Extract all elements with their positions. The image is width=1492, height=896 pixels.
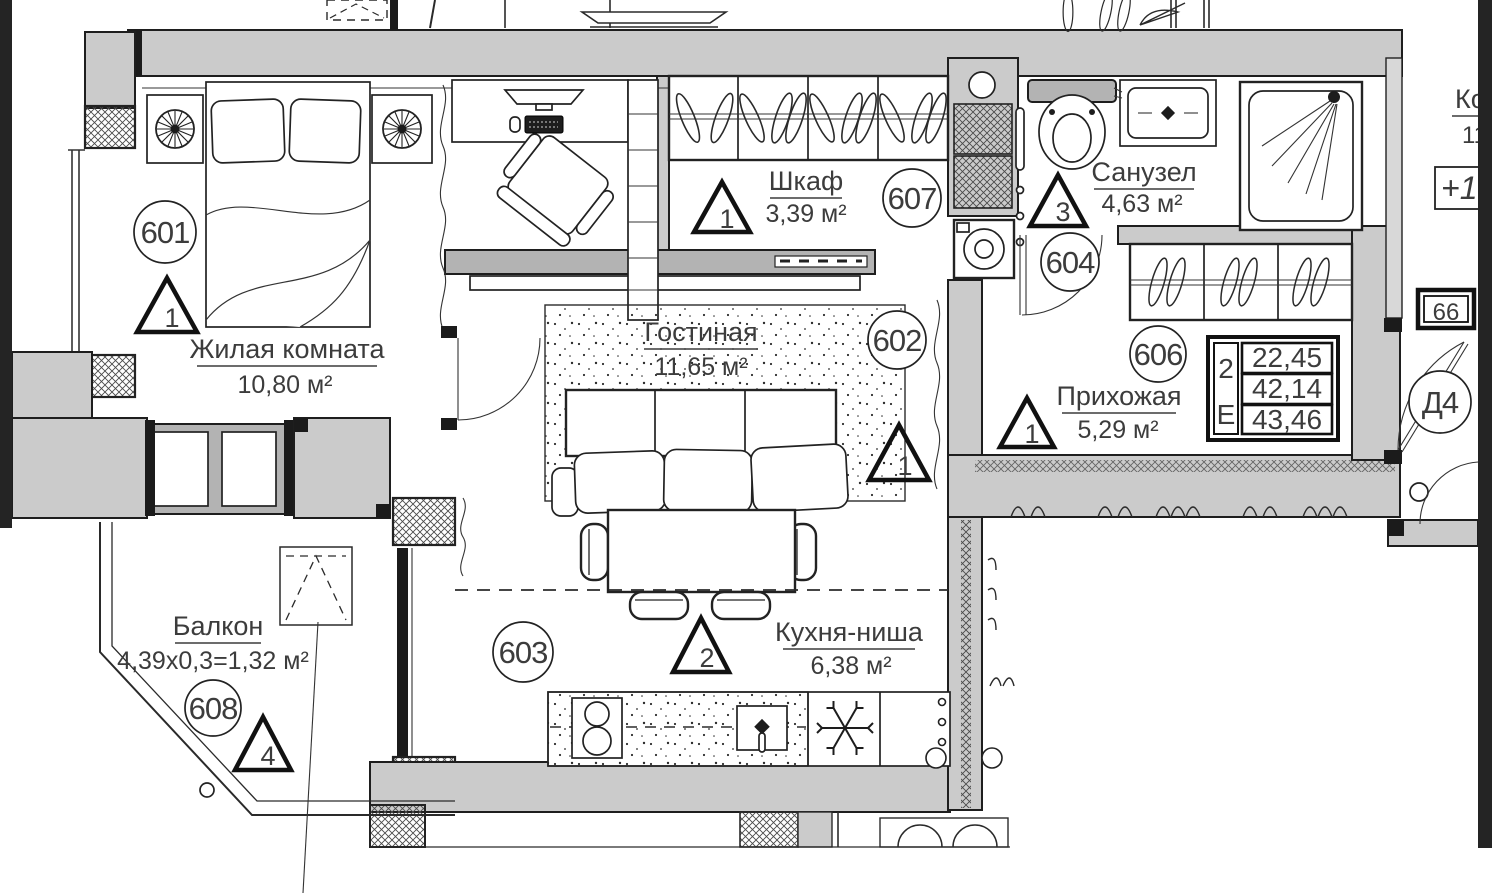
dining-chair-left <box>581 524 608 580</box>
wall-balcony-pier <box>294 418 390 518</box>
door-jamb-bottom <box>1384 450 1402 464</box>
dining-chair-bottom-2 <box>712 592 770 619</box>
neighbor-monitor <box>582 12 726 27</box>
monitor-stand <box>536 104 552 110</box>
wardrobe <box>669 76 950 160</box>
neighbor-wall-hatch <box>740 812 798 847</box>
neighbor-wall-gray <box>798 812 832 847</box>
dining-table <box>608 510 795 592</box>
duct-box-2 <box>954 156 1012 208</box>
label-hallway: 606 1 Прихожая 5,29 м² <box>1000 326 1186 449</box>
monitor-icon <box>505 90 583 104</box>
room-name: Балкон <box>173 611 264 641</box>
break-line-bedroom <box>440 85 445 329</box>
wall-top <box>128 30 1402 76</box>
total-area-value: 43,46 <box>1252 404 1322 435</box>
neighbor-door-arc <box>1420 462 1478 524</box>
wall-corridor-hatch-2 <box>975 460 1395 472</box>
neighbor-fixture <box>1140 3 1185 25</box>
door-label: Д4 <box>1422 385 1459 420</box>
mouse-icon <box>510 117 520 132</box>
sofa-cushion-1 <box>574 450 666 513</box>
washing-machine <box>954 220 1014 278</box>
room-name: Шкаф <box>769 166 843 196</box>
break-line-living <box>934 300 939 489</box>
rooms-count: 2 <box>1218 353 1234 384</box>
shower <box>1240 82 1362 230</box>
balcony-window-1 <box>154 432 208 506</box>
wall-right-outer <box>1386 58 1402 318</box>
balcony-vent-box <box>280 547 352 625</box>
floor-plan-canvas: 601 1 Жилая комната 10,80 м² 607 1 Шкаф … <box>0 0 1492 896</box>
room-number: 607 <box>888 181 937 216</box>
window-crosshatch-box-1 <box>85 106 135 148</box>
door-jamb-top <box>1384 318 1402 332</box>
vent-number: 3 <box>1055 197 1070 227</box>
room-name: Жилая комната <box>189 334 385 364</box>
bedroom-door <box>441 326 540 430</box>
dining-chair-bottom-1 <box>630 592 688 619</box>
hall-closet <box>1130 244 1352 320</box>
wall-cap <box>1388 520 1404 536</box>
wall-bottom <box>370 762 950 812</box>
keyboard-icon <box>525 116 563 133</box>
room-number: 606 <box>1134 337 1183 372</box>
sink-icon <box>737 706 787 752</box>
living-area-value: 22,45 <box>1252 342 1322 373</box>
vent-number: 1 <box>164 303 179 333</box>
wall-left-pier-top <box>85 32 135 108</box>
neighbor-wall-corner <box>390 0 398 30</box>
neighbor-vent-box <box>327 0 387 20</box>
room-area: 4,39x0,3=1,32 м² <box>117 647 309 675</box>
wall-corridor-hatch <box>961 520 971 808</box>
corridor-door-symbols <box>988 507 1347 686</box>
wall-step-2 <box>12 418 147 518</box>
room-name: Гостиная <box>644 317 757 347</box>
edge-left <box>0 0 12 528</box>
wall-cap <box>376 504 390 518</box>
room-name: Кухня-ниша <box>775 617 924 647</box>
room-name: Санузел <box>1091 157 1196 187</box>
room-number: 608 <box>189 691 238 726</box>
room-area: 5,29 м² <box>1077 416 1158 444</box>
room-number: 603 <box>499 635 548 670</box>
wall-step-1 <box>12 352 92 418</box>
vent-number: 4 <box>260 741 275 771</box>
window-crosshatch-box-3 <box>393 498 455 545</box>
sofa <box>552 390 849 516</box>
fan-lamp-icon <box>383 110 421 148</box>
room-area: 3,39 м² <box>765 200 846 228</box>
floor-plan-drawing: 601 1 Жилая комната 10,80 м² 607 1 Шкаф … <box>0 0 1492 896</box>
label-balcony: Балкон 4,39x0,3=1,32 м² 608 4 <box>117 611 309 771</box>
balcony-window-2 <box>222 432 276 506</box>
room-number: 601 <box>141 215 190 250</box>
sofa-cushion-2 <box>663 449 752 513</box>
label-kitchen: 603 2 Кухня-ниша 6,38 м² <box>493 617 924 682</box>
apartment-area-value: 42,14 <box>1252 373 1322 404</box>
vent-number: 1 <box>719 204 734 234</box>
office-chair <box>489 125 621 253</box>
unit-number: 66 <box>1433 299 1460 326</box>
window-post-1 <box>145 420 155 516</box>
room-number: 602 <box>873 323 922 358</box>
label-closet: 607 1 Шкаф 3,39 м² <box>694 166 941 234</box>
wall-bottom-hatch-corner <box>370 805 425 847</box>
type-letter: Е <box>1217 399 1236 430</box>
bath-sink <box>1114 80 1216 146</box>
edge-right <box>1478 0 1492 848</box>
sofa-cushion-3 <box>750 444 848 513</box>
stove-icon <box>572 698 622 758</box>
room-number: 604 <box>1046 245 1095 280</box>
room-area: 10,80 м² <box>237 371 332 399</box>
break-line-kitchen <box>461 498 466 576</box>
door-swing-arc <box>458 338 540 420</box>
room-area: 6,38 м² <box>810 652 891 680</box>
pillow-right <box>289 99 361 163</box>
towel-rail <box>1016 108 1024 170</box>
console-shelf <box>470 276 860 290</box>
neighbor-hangers-top <box>1063 0 1133 32</box>
toilet-bowl-inner <box>1053 114 1091 162</box>
corridor-hinge-marks <box>988 558 996 630</box>
drain-circle <box>200 783 214 797</box>
vent-number: 2 <box>699 643 714 673</box>
pillow-left <box>211 99 285 163</box>
balcony-door-leaf <box>397 548 408 756</box>
window-glazing-left <box>68 150 85 353</box>
dining-set <box>581 510 816 619</box>
room-name: Прихожая <box>1056 381 1181 411</box>
vent-number: 1 <box>1024 419 1039 449</box>
wall-cap <box>294 418 308 432</box>
neighbor-vent-diag <box>330 4 384 18</box>
area-summary-table: 2 Е 22,45 42,14 43,46 <box>1208 337 1338 440</box>
room-area: 11,65 м² <box>654 353 747 381</box>
window-post-2 <box>284 420 294 516</box>
neighbor-stove <box>880 818 1008 847</box>
room-area: 4,63 м² <box>1101 190 1182 218</box>
fan-lamp-icon <box>156 110 194 148</box>
vent-hole <box>969 72 995 98</box>
vent-number: 1 <box>897 451 912 481</box>
shelving-unit <box>628 80 658 320</box>
duct-box-1 <box>954 104 1012 154</box>
kitchen <box>548 692 1002 768</box>
